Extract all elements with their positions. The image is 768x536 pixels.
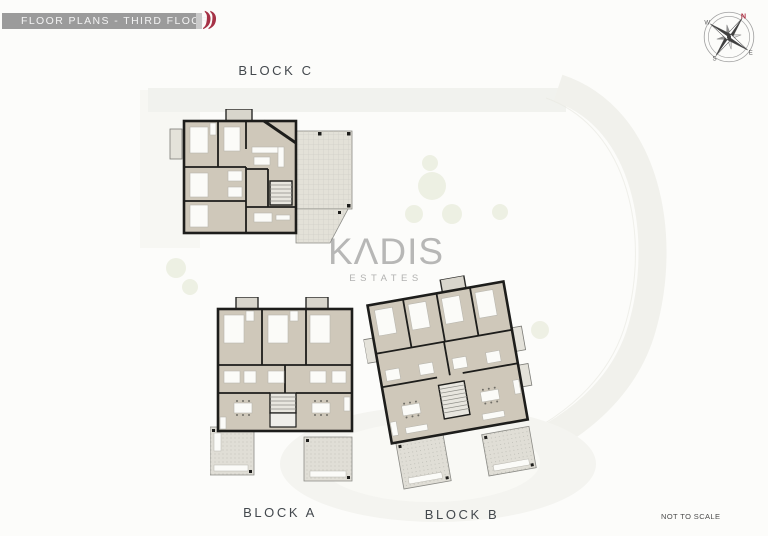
block-a-roof-box-2 xyxy=(306,297,328,309)
block-a-roof-box-1 xyxy=(236,297,258,309)
header-bar-endcap xyxy=(196,13,202,29)
page: FLOOR PLANS - THIRD FLOOR )) xyxy=(0,0,768,536)
header-bar: FLOOR PLANS - THIRD FLOOR xyxy=(2,13,202,29)
scale-note: NOT TO SCALE xyxy=(661,512,720,521)
compass-south-label: S xyxy=(712,56,716,63)
block-a-stairs xyxy=(270,393,296,427)
compass-rose-icon: N E S W xyxy=(697,5,761,69)
block-a-elevator xyxy=(270,413,296,427)
block-a-terrace-left xyxy=(210,427,254,475)
compass-star xyxy=(697,5,760,68)
block-c-label: BLOCK C xyxy=(216,63,336,78)
compass-west-label: W xyxy=(704,20,710,27)
block-c-plan xyxy=(168,109,358,254)
compass-north-label: N xyxy=(741,11,746,20)
block-a-plan xyxy=(210,297,360,487)
page-title: FLOOR PLANS - THIRD FLOOR xyxy=(2,15,210,27)
block-a-terrace-right xyxy=(304,437,352,481)
block-a-label: BLOCK A xyxy=(220,505,340,520)
block-c-veranda xyxy=(296,131,352,209)
block-b-terrace-right xyxy=(482,426,537,476)
block-c-stairs xyxy=(270,181,292,205)
compass-east-label: E xyxy=(749,50,753,57)
block-b-terrace-left xyxy=(396,434,451,489)
block-b-stairs xyxy=(438,381,470,419)
block-b-label: BLOCK B xyxy=(402,507,522,522)
block-c-balcony-left xyxy=(170,129,182,159)
block-c-terrace xyxy=(296,209,348,243)
